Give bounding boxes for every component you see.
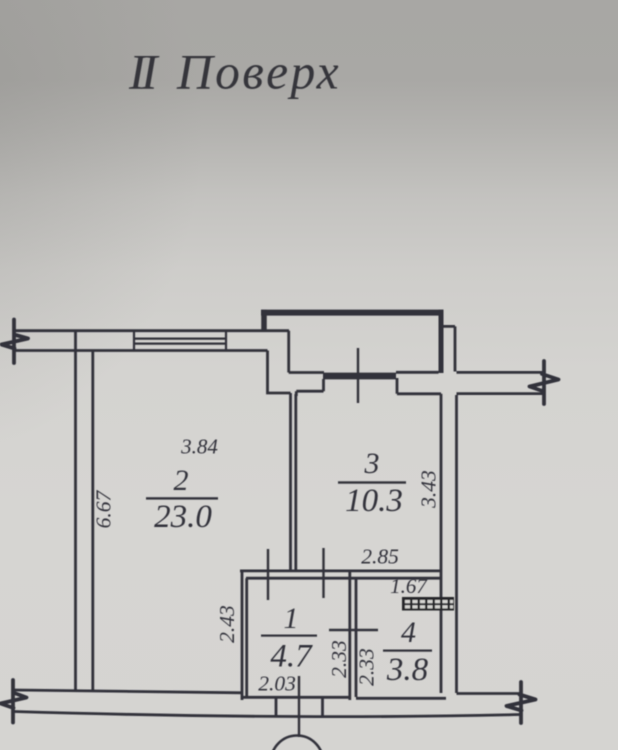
svg-text:3.43: 3.43	[417, 470, 441, 509]
svg-text:2: 2	[174, 464, 189, 497]
svg-text:1.67: 1.67	[390, 574, 428, 598]
svg-text:4: 4	[401, 616, 416, 649]
svg-text:IIПоверх: IIПоверх	[128, 45, 341, 100]
svg-text:3.84: 3.84	[180, 435, 218, 459]
svg-text:23.0: 23.0	[154, 499, 212, 535]
svg-text:1: 1	[284, 602, 299, 635]
svg-text:6.67: 6.67	[92, 489, 116, 528]
svg-text:2.33: 2.33	[355, 648, 379, 686]
svg-text:10.3: 10.3	[345, 483, 403, 519]
svg-text:3.8: 3.8	[386, 652, 429, 688]
svg-text:2.33: 2.33	[327, 640, 351, 678]
svg-text:3: 3	[364, 447, 380, 480]
svg-text:2.03: 2.03	[258, 672, 296, 696]
svg-text:4.7: 4.7	[270, 639, 313, 675]
svg-text:2.85: 2.85	[361, 545, 399, 569]
svg-text:2.43: 2.43	[215, 605, 239, 643]
